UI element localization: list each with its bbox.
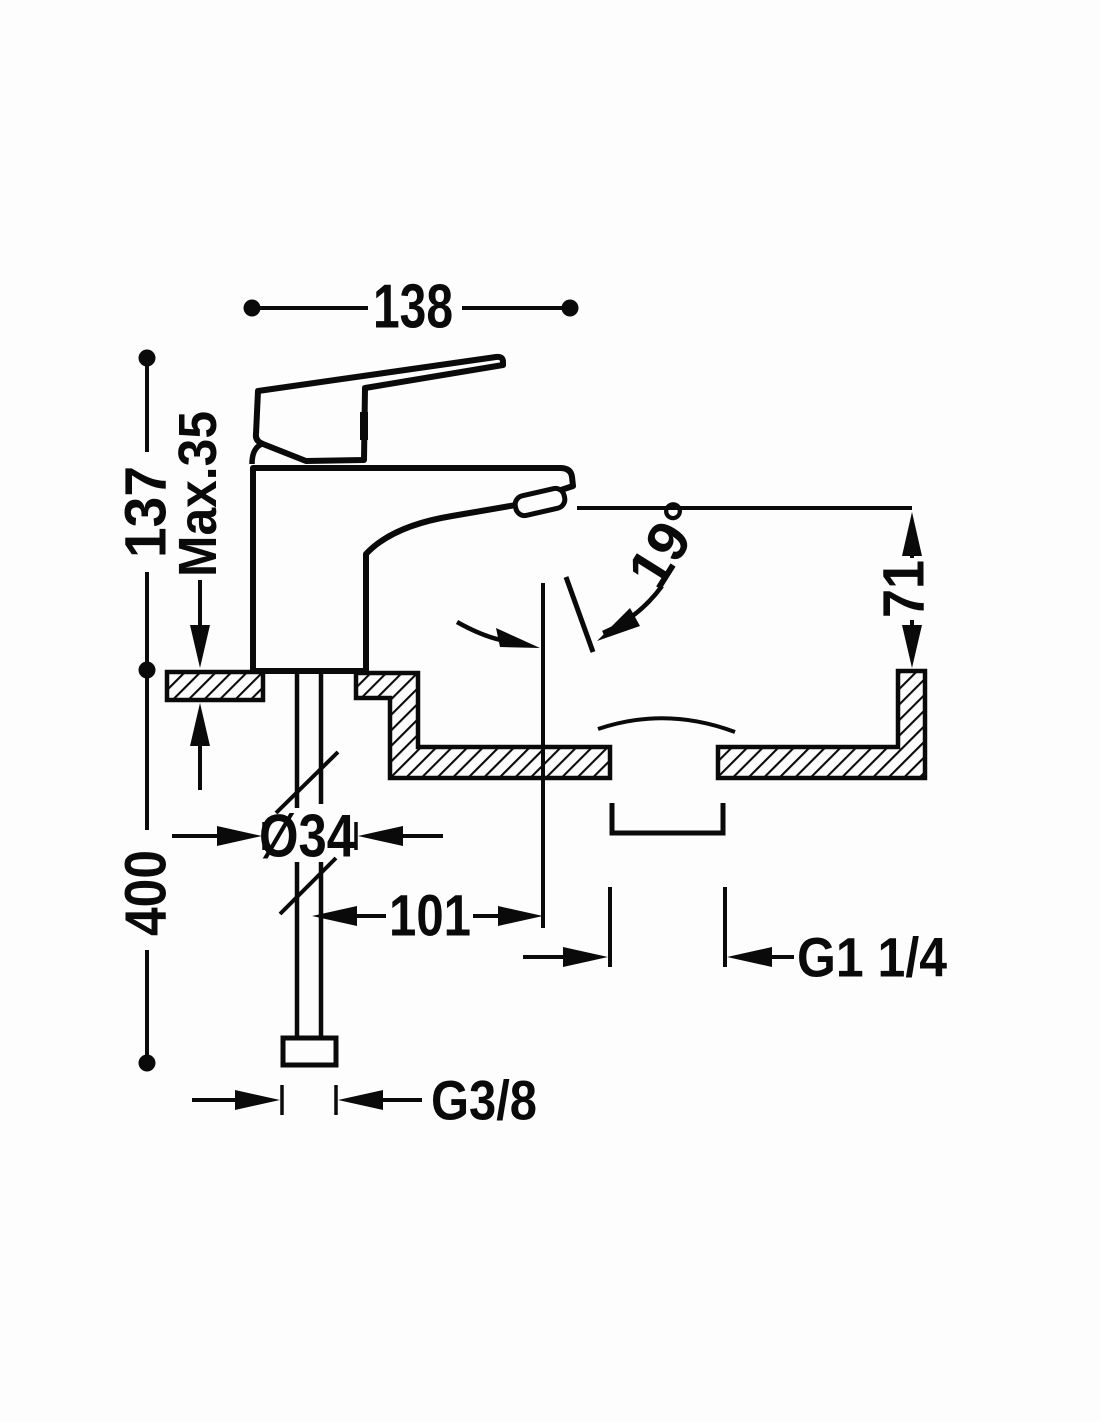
dim-label-drain-thread: G1 1/4 — [797, 926, 947, 989]
countertop-section-left — [167, 672, 263, 700]
faucet-dimension-diagram: 138 137 400 Max.35 Ø34 101 — [0, 0, 1100, 1422]
dim-label-width: 138 — [373, 273, 453, 342]
hose-nut — [283, 1038, 336, 1065]
dim-label-spout-reach: 101 — [389, 884, 471, 949]
background — [0, 0, 1100, 1422]
dim-end-dot — [562, 300, 579, 317]
dim-label-max-thickness: Max.35 — [168, 411, 228, 577]
dim-label-hose-length: 400 — [114, 850, 179, 936]
dim-label-supply-thread: G3/8 — [431, 1069, 537, 1132]
dim-end-dot — [244, 300, 261, 317]
dim-label-hole-diameter: Ø34 — [259, 803, 356, 870]
dim-end-dot — [139, 662, 156, 679]
dim-label-spout-height: 71 — [872, 560, 937, 618]
technical-drawing-page: 138 137 400 Max.35 Ø34 101 — [0, 0, 1100, 1422]
dim-end-dot — [139, 1055, 156, 1072]
dim-end-dot — [139, 350, 156, 367]
